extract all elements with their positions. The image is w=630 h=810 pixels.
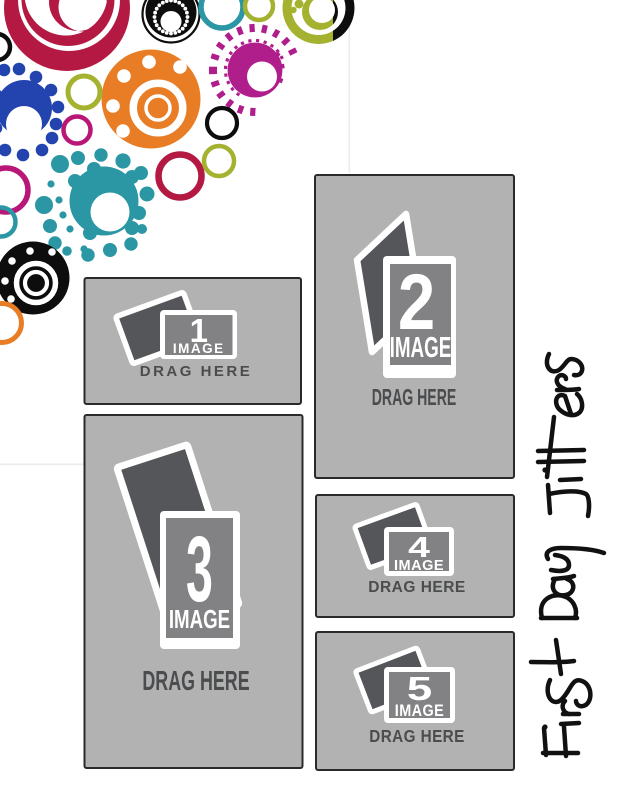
svg-text:IMAGE: IMAGE bbox=[395, 702, 444, 720]
svg-text:DRAG HERE: DRAG HERE bbox=[372, 384, 457, 411]
svg-text:DRAG HERE: DRAG HERE bbox=[140, 363, 253, 380]
svg-text:DRAG HERE: DRAG HERE bbox=[369, 726, 465, 746]
svg-text:IMAGE: IMAGE bbox=[394, 558, 444, 574]
svg-text:IMAGE: IMAGE bbox=[390, 332, 452, 364]
svg-text:IMAGE: IMAGE bbox=[173, 341, 225, 356]
svg-text:DRAG HERE: DRAG HERE bbox=[142, 665, 249, 696]
svg-text:DRAG HERE: DRAG HERE bbox=[368, 579, 466, 596]
svg-text:IMAGE: IMAGE bbox=[169, 604, 230, 634]
